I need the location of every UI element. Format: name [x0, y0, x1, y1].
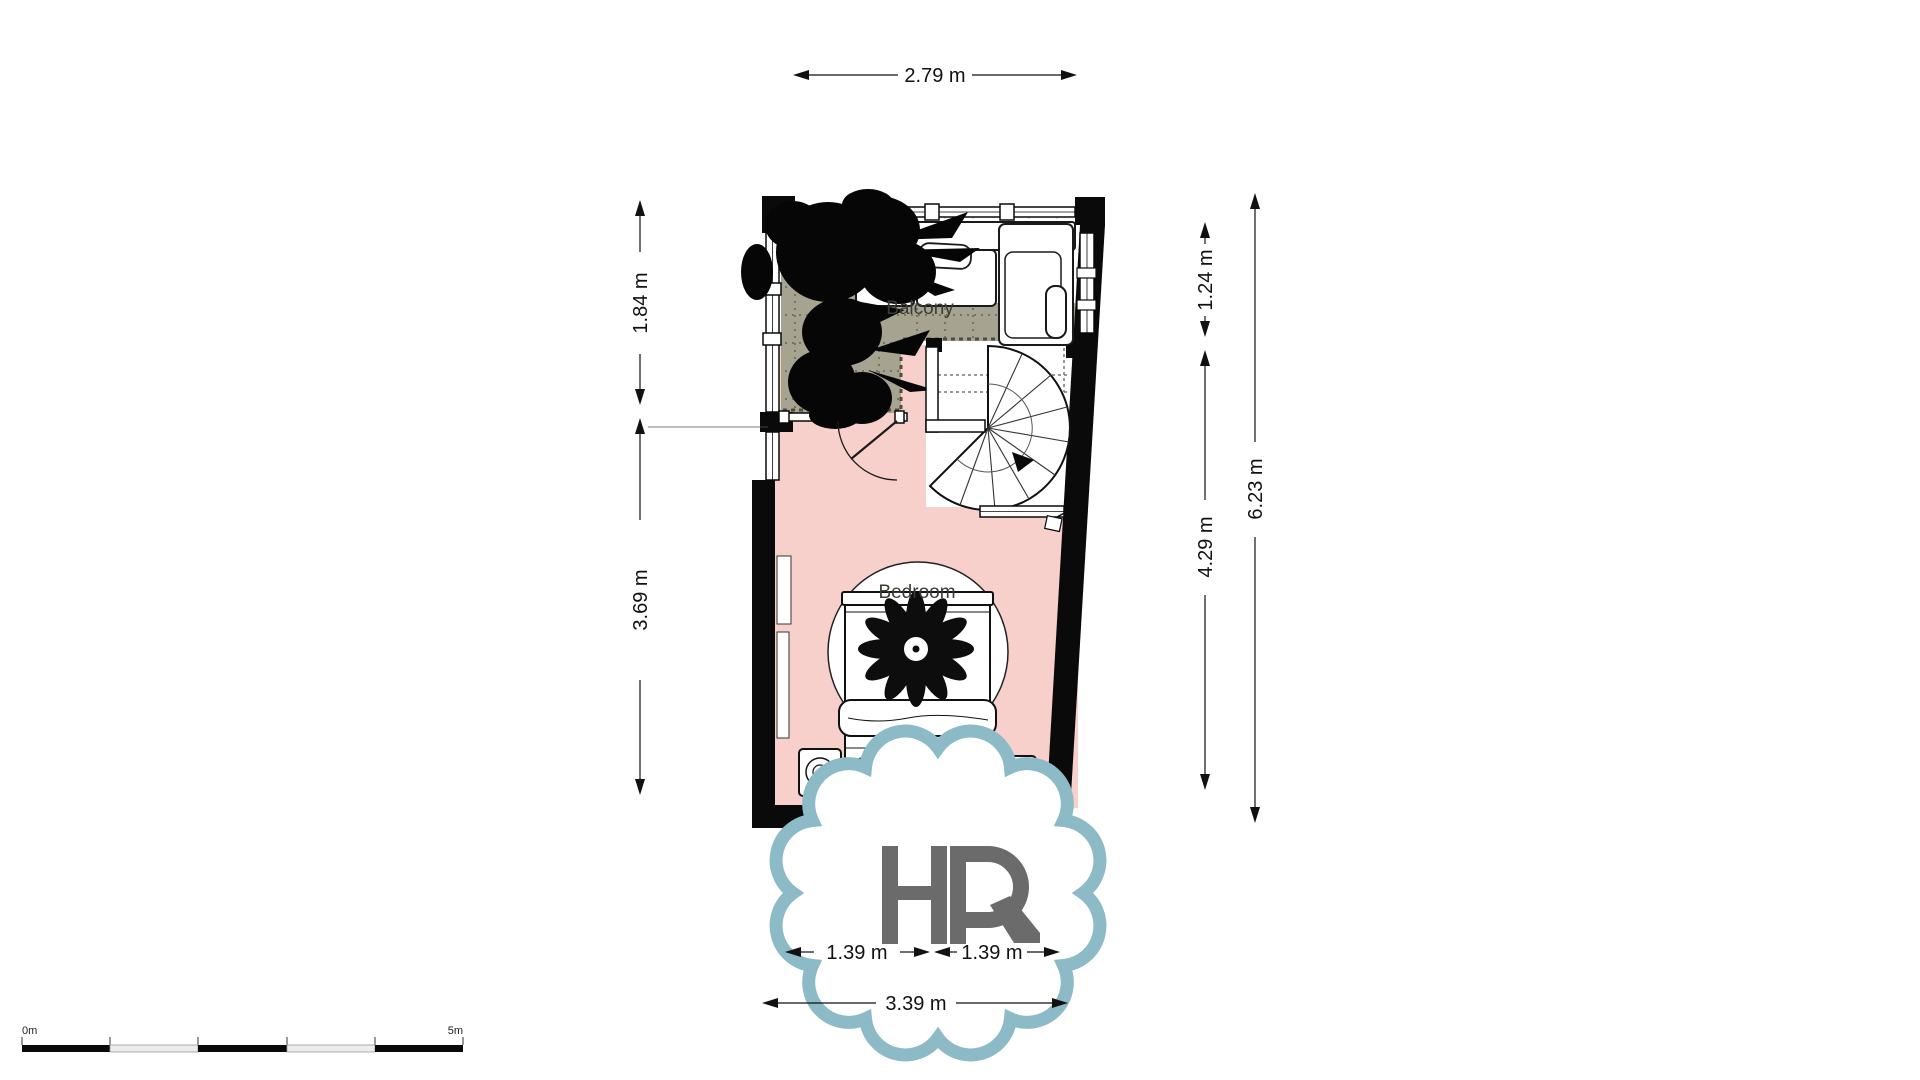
dim-right-lower: 4.29 m	[1195, 516, 1217, 577]
bedroom-left-wall	[752, 480, 775, 805]
bedroom-left-window	[766, 432, 779, 480]
radiator	[777, 556, 791, 738]
balcony-label: Balcony	[886, 298, 954, 319]
dim-right-upper: 1.24 m	[1195, 249, 1217, 310]
sofa-bolster-pillow	[1046, 286, 1066, 338]
dim-left-upper: 1.84 m	[630, 272, 652, 333]
bedroom-label: Bedroom	[878, 582, 955, 603]
floorplan-canvas: Balcony Bedroom 2.79 m 1.84 m 3.69 m 1.2…	[0, 0, 1920, 1080]
balcony-right-window	[1077, 233, 1096, 333]
scale-end-label: 5m	[448, 1025, 463, 1037]
floorplan-drawing: Balcony Bedroom 2.79 m 1.84 m 3.69 m 1.2…	[0, 0, 1920, 1080]
dim-bottom-total: 3.39 m	[885, 993, 946, 1015]
dim-bottom-right: 1.39 m	[961, 942, 1022, 964]
stair-partition-wall-h	[926, 420, 985, 432]
stair-ledge	[980, 506, 1064, 517]
scale-start-label: 0m	[22, 1025, 37, 1037]
scale-bar: 0m 5m	[22, 1025, 463, 1052]
dim-bottom-left: 1.39 m	[826, 942, 887, 964]
wall-pillar-top-right	[1075, 197, 1105, 225]
dim-right-total: 6.23 m	[1245, 458, 1267, 519]
dim-top: 2.79 m	[904, 65, 965, 87]
dim-left-lower: 3.69 m	[630, 569, 652, 630]
